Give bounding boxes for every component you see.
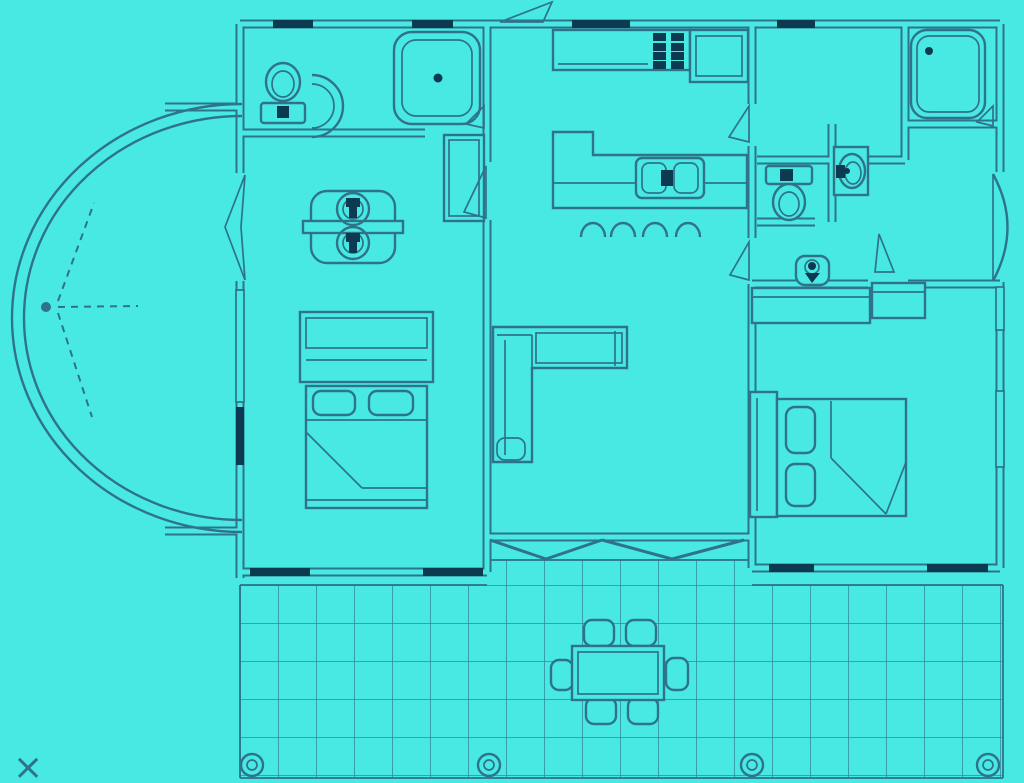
floor-plan-drawing: ×: [0, 0, 1024, 783]
window: [236, 407, 244, 465]
vanity-sink-right-icon: [834, 147, 868, 195]
deck-patio: [240, 560, 1003, 778]
double-laundry-sink-icon: [303, 191, 403, 263]
dresser-icon: [300, 312, 433, 382]
pillow-icon: [369, 391, 413, 415]
window: [996, 391, 1004, 467]
tub-drain-icon: [925, 47, 933, 55]
window: [572, 20, 630, 28]
faucet-icon: [661, 170, 673, 186]
window: [412, 20, 453, 28]
pillow-icon: [786, 407, 815, 453]
bedroom-right: [750, 283, 925, 517]
chair: [586, 698, 616, 724]
bathtub-icon: [911, 30, 985, 118]
corner-counter-icon: [690, 30, 748, 82]
deck-tile-grid-upper-strip: [487, 560, 752, 585]
window: [273, 20, 313, 28]
pillow-icon: [313, 391, 355, 415]
corner-hand-basin-icon: [796, 256, 829, 285]
dining-table: [572, 646, 664, 700]
chair: [584, 620, 614, 646]
bed-right-icon: [750, 392, 906, 517]
headboard-icon: [750, 392, 777, 517]
door-pivot-dot: [41, 302, 51, 312]
window: [769, 564, 814, 572]
shower-drain-icon: [434, 74, 443, 83]
chair: [626, 620, 656, 646]
chair: [666, 658, 688, 690]
window: [777, 20, 815, 28]
tall-cabinet-icon: [444, 135, 484, 221]
window: [996, 287, 1004, 330]
toilet-bowl-icon: [266, 63, 300, 101]
desk-counter-icon: [752, 283, 925, 323]
chair: [551, 660, 573, 690]
floor-plan-canvas: ×: [0, 0, 1024, 783]
pillow-icon: [786, 464, 815, 506]
window: [423, 568, 483, 576]
bed-left-icon: [306, 386, 427, 508]
window: [236, 290, 244, 402]
chair: [628, 698, 658, 724]
window: [250, 568, 310, 576]
window: [927, 564, 988, 572]
close-x-mark[interactable]: ×: [13, 747, 43, 783]
